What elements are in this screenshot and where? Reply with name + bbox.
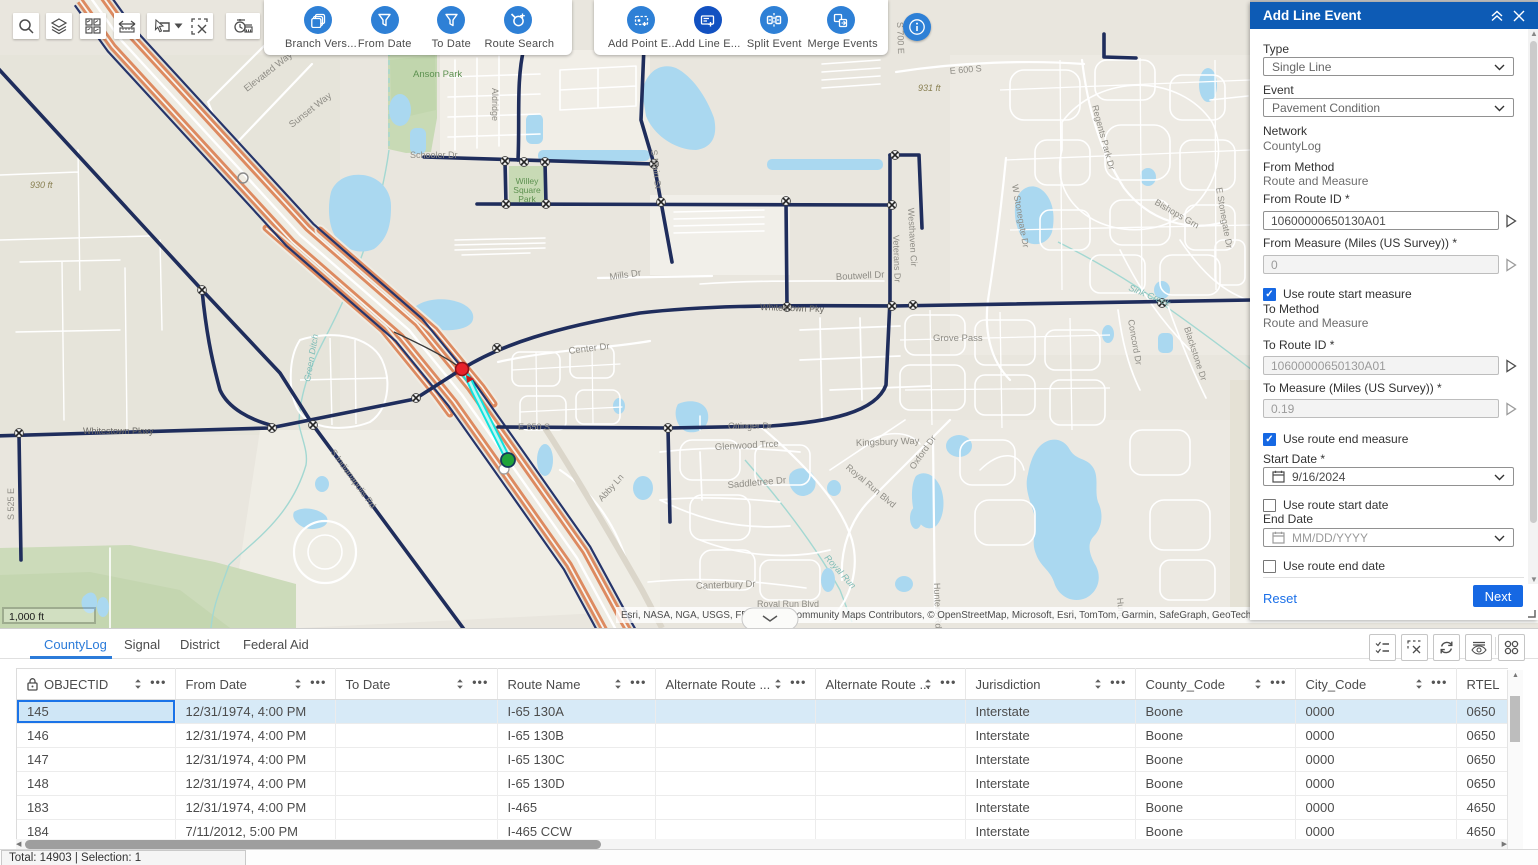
svg-text:Schooler Dr: Schooler Dr bbox=[410, 150, 458, 160]
svg-text:Grove Pass: Grove Pass bbox=[933, 333, 983, 344]
svg-text:931 ft: 931 ft bbox=[918, 83, 941, 93]
svg-text:Ottinger Dr: Ottinger Dr bbox=[728, 421, 772, 431]
svg-text:Esri, NASA, NGA, USGS, FEMA |: Esri, NASA, NGA, USGS, FEMA | Esri Commu… bbox=[621, 610, 1264, 621]
svg-text:Park: Park bbox=[518, 194, 536, 204]
svg-text:Canterbury Dr: Canterbury Dr bbox=[696, 579, 756, 592]
svg-text:E 650 S: E 650 S bbox=[518, 422, 550, 432]
svg-text:Veterans Dr: Veterans Dr bbox=[891, 235, 903, 283]
svg-text:S 525 E: S 525 E bbox=[6, 488, 16, 520]
svg-text:Anson Park: Anson Park bbox=[413, 69, 462, 80]
svg-text:930 ft: 930 ft bbox=[30, 180, 53, 190]
svg-text:Whitestown Pkwy: Whitestown Pkwy bbox=[83, 426, 154, 436]
svg-text:1,000 ft: 1,000 ft bbox=[9, 611, 44, 623]
svg-text:Aldridge: Aldridge bbox=[490, 88, 500, 121]
svg-text:Kingsbury Way: Kingsbury Way bbox=[856, 436, 920, 449]
